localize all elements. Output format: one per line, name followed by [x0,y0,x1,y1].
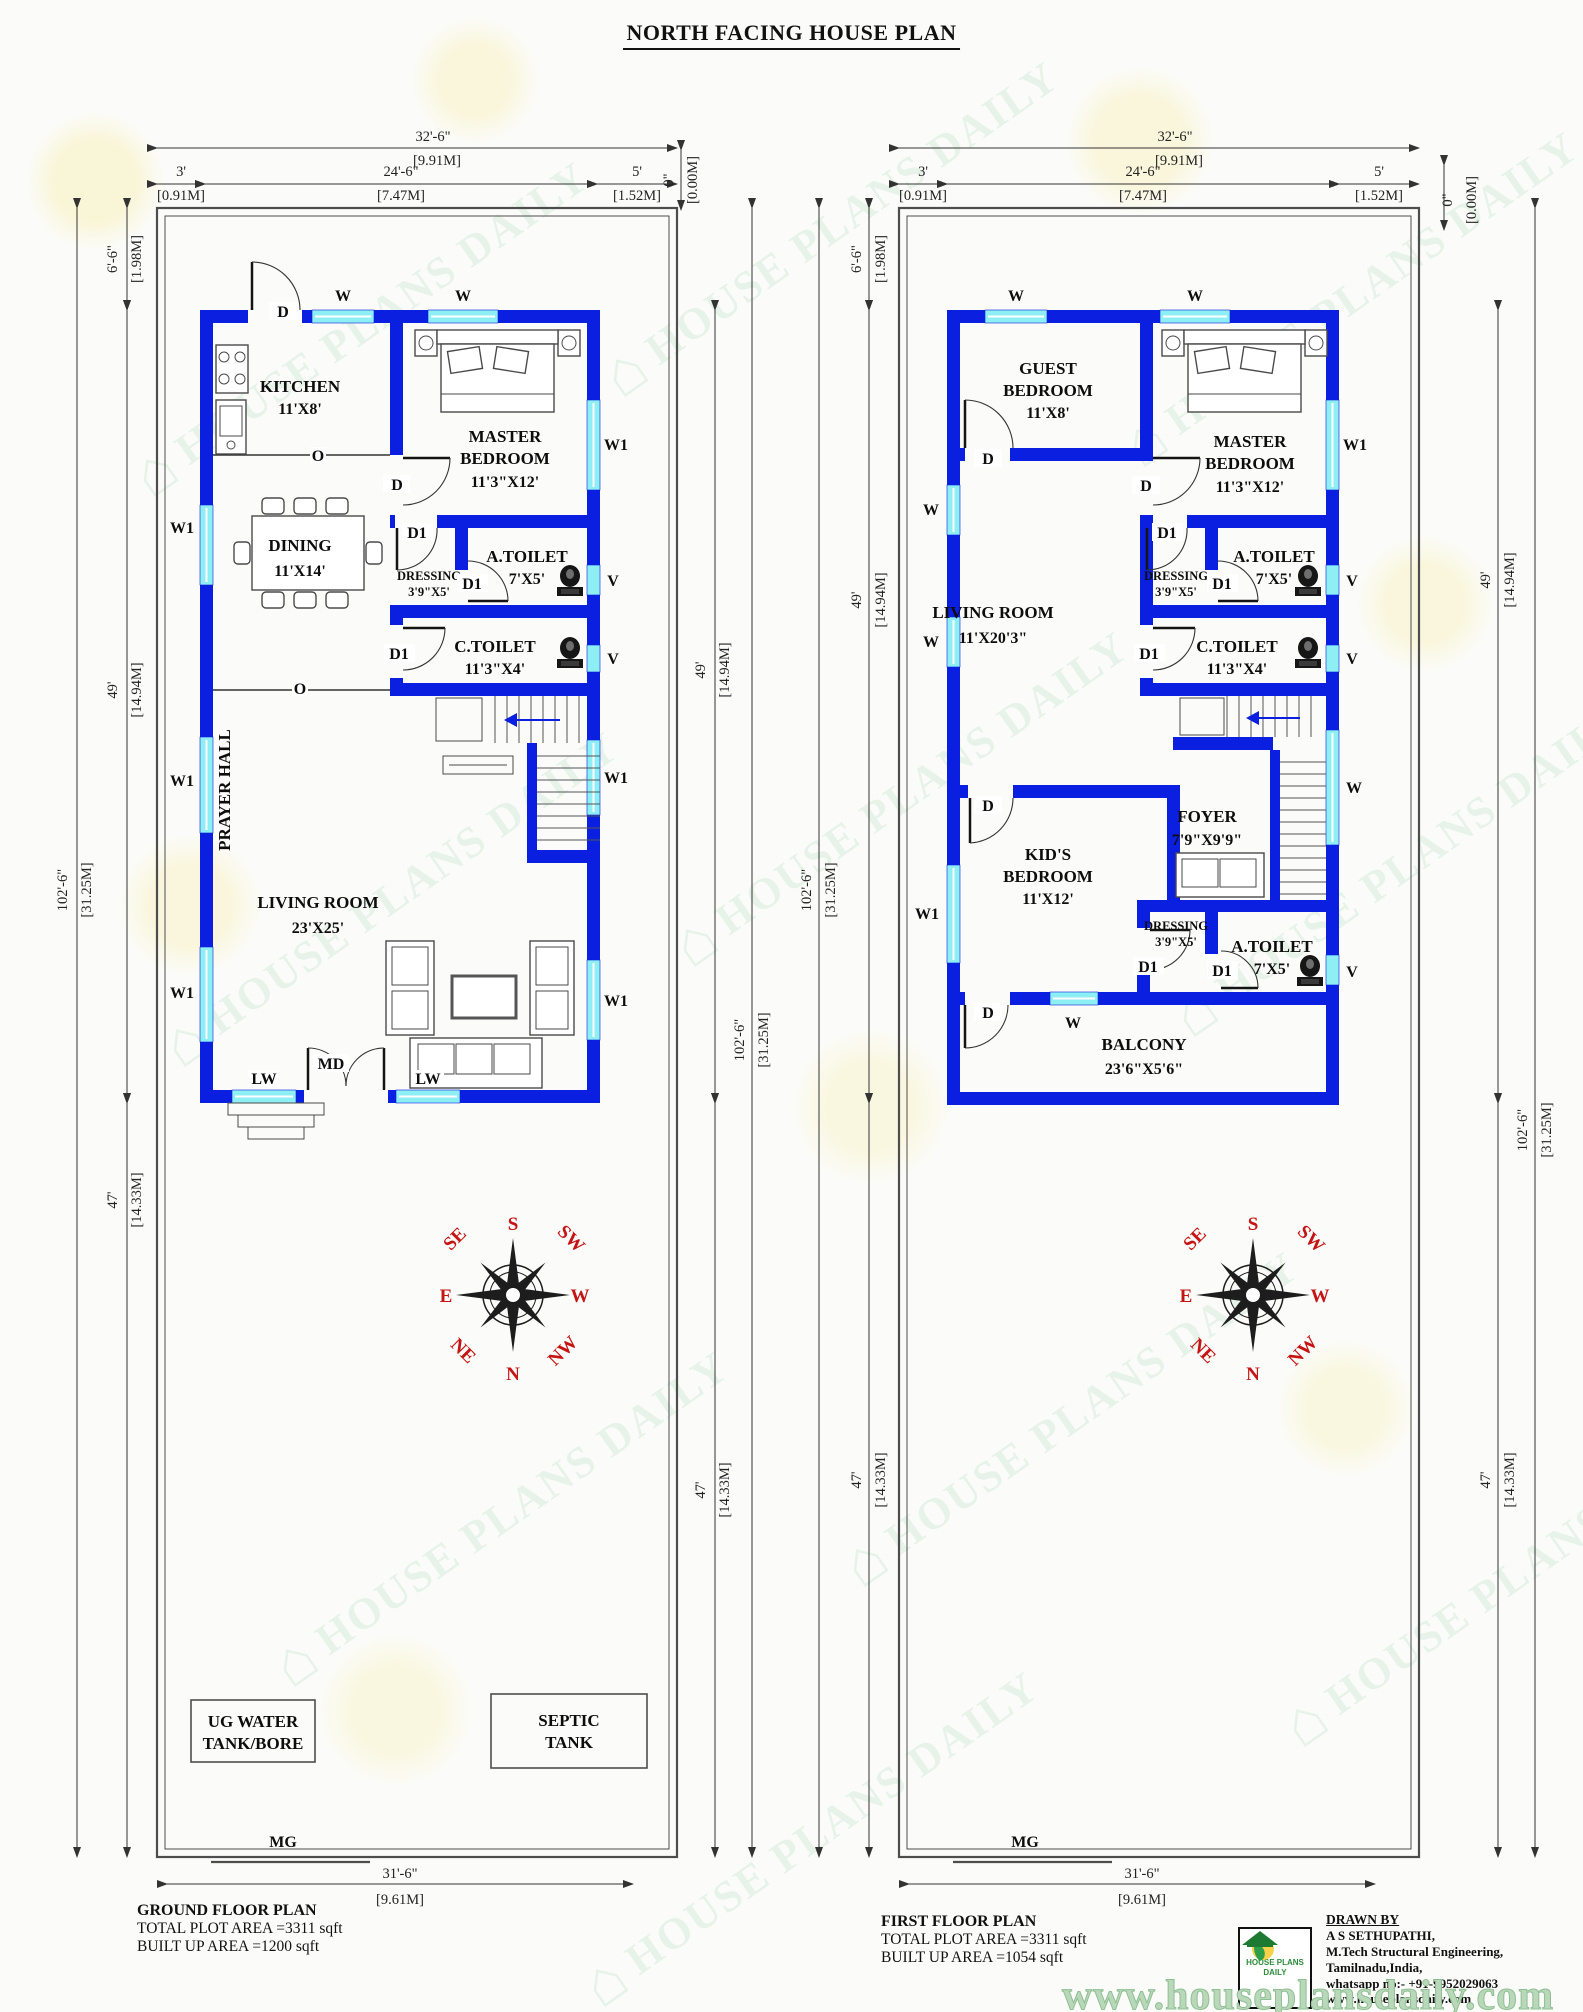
logo-house-icon [1240,1929,1280,1963]
svg-text:47': 47' [849,1471,865,1488]
svg-text:TANK/BORE: TANK/BORE [203,1734,304,1753]
first-built-area: BUILT UP AREA =1054 sqft [881,1949,1087,1967]
svg-text:11'X14': 11'X14' [274,563,326,580]
svg-text:W1: W1 [1343,437,1367,454]
svg-text:E: E [1180,1286,1193,1307]
svg-text:7'9"X9'9": 7'9"X9'9" [1172,832,1242,849]
svg-text:23'X25': 23'X25' [292,920,344,937]
svg-text:[1.98M]: [1.98M] [873,235,889,283]
svg-text:D: D [1140,478,1152,495]
svg-text:11'X12': 11'X12' [1022,891,1074,908]
svg-text:V: V [1346,573,1358,590]
svg-text:W1: W1 [915,906,939,923]
room-label-guest-bedroom: GUEST [1019,359,1077,378]
svg-text:[14.33M]: [14.33M] [1502,1452,1518,1507]
svg-text:W: W [923,634,939,651]
author-qualification: M.Tech Structural Engineering, [1326,1944,1581,1960]
ground-floor-caption: GROUND FLOOR PLAN TOTAL PLOT AREA =3311 … [137,1902,343,1956]
room-label-living: LIVING ROOM [257,893,378,912]
svg-text:24'-6": 24'-6" [383,164,418,180]
plans-drawing: MG 32'-6" [9.91M] 3' [0.91M] 24'-6" [7.4… [0,0,1583,2012]
svg-text:[7.47M]: [7.47M] [1119,188,1167,204]
svg-text:47': 47' [105,1191,121,1208]
door-label: D [277,304,289,321]
ground-stairs [436,696,600,840]
svg-text:BEDROOM: BEDROOM [1205,454,1295,473]
svg-text:W1: W1 [604,770,628,787]
svg-text:SW: SW [1293,1221,1329,1257]
svg-text:W: W [923,502,939,519]
gate-label: MG [269,1834,297,1851]
svg-text:O: O [312,448,324,465]
svg-text:[14.94M]: [14.94M] [717,642,733,697]
svg-text:5': 5' [1374,164,1384,180]
room-label-living: LIVING ROOM [932,603,1053,622]
svg-text:49': 49' [1478,571,1494,588]
svg-text:NE: NE [1186,1334,1220,1368]
main-door-label: MD [318,1056,345,1073]
svg-text:11'3"X12': 11'3"X12' [471,474,539,491]
svg-text:N: N [1246,1364,1260,1385]
svg-text:49': 49' [105,681,121,698]
svg-text:D1: D1 [1139,646,1159,663]
first-floor-title: FIRST FLOOR PLAN [881,1913,1087,1931]
svg-text:47': 47' [693,1481,709,1498]
compass-label-sw: SW [553,1221,589,1257]
svg-text:BEDROOM: BEDROOM [1003,381,1093,400]
room-label-dressing2: DRESSING [1144,919,1208,933]
svg-text:102'-6": 102'-6" [55,869,71,911]
svg-text:W1: W1 [170,520,194,537]
svg-text:5': 5' [632,164,642,180]
gate-label: MG [1011,1834,1039,1851]
svg-text:11'3"X4': 11'3"X4' [465,661,525,678]
svg-text:102'-6": 102'-6" [732,1019,748,1061]
svg-text:[0.91M]: [0.91M] [157,188,205,204]
compass-label-s: S [508,1214,519,1235]
svg-text:102'-6": 102'-6" [1515,1109,1531,1151]
svg-text:D1: D1 [462,576,482,593]
compass-label-se: SE [439,1223,470,1254]
svg-text:[9.61M]: [9.61M] [1118,1892,1166,1908]
room-label-foyer: FOYER [1177,807,1237,826]
svg-text:W1: W1 [604,437,628,454]
room-label-kids-bedroom: KID'S [1025,845,1071,864]
first-walls [947,310,1339,1105]
svg-text:UG WATER: UG WATER [208,1712,299,1731]
dim-label: [9.91M] [413,153,461,169]
svg-text:LW: LW [251,1071,276,1088]
svg-text:D1: D1 [1212,576,1232,593]
first-plot-area: TOTAL PLOT AREA =3311 sqft [881,1931,1087,1949]
svg-text:[31.25M]: [31.25M] [79,862,95,917]
svg-text:11'X8': 11'X8' [1026,405,1070,422]
stove-icon [216,345,248,393]
svg-text:W: W [1187,288,1203,305]
first-floor-plan: MG 32'-6" [9.91M] 3' [0.91M] 24'-6" [7.4… [799,129,1555,1908]
svg-text:V: V [607,573,619,590]
svg-text:6'-6": 6'-6" [849,245,865,273]
room-label-a-toilet2: A.TOILET [1231,937,1313,956]
svg-text:11'3"X12': 11'3"X12' [1216,479,1284,496]
svg-text:3'9"X5': 3'9"X5' [1155,585,1197,599]
coffee-table-icon [452,976,516,1018]
sink-icon [216,400,246,454]
svg-text:[1.98M]: [1.98M] [129,235,145,283]
svg-text:24'-6": 24'-6" [1125,164,1160,180]
svg-text:NW: NW [1284,1332,1322,1370]
svg-text:[0.91M]: [0.91M] [899,188,947,204]
svg-text:[14.33M]: [14.33M] [129,1172,145,1227]
svg-text:D1: D1 [1157,525,1177,542]
room-label-dining: DINING [268,536,331,555]
room-label-a-toilet: A.TOILET [486,547,568,566]
svg-text:[0.00M]: [0.00M] [1464,176,1480,224]
svg-text:31'-6": 31'-6" [1124,1866,1159,1882]
svg-text:[14.94M]: [14.94M] [129,662,145,717]
svg-text:49': 49' [693,661,709,678]
website-watermark: www.houseplansdaily.com [1062,1972,1554,2012]
svg-text:S: S [1248,1214,1259,1235]
drawn-by-heading: DRAWN BY [1326,1912,1581,1928]
svg-text:32'-6": 32'-6" [1157,129,1192,145]
svg-text:11'X20'3": 11'X20'3" [959,630,1027,647]
svg-text:[1.52M]: [1.52M] [613,188,661,204]
svg-text:[31.25M]: [31.25M] [1539,1102,1555,1157]
svg-text:W: W [1065,1015,1081,1032]
svg-text:D1: D1 [1138,959,1158,976]
svg-text:3': 3' [176,164,186,180]
svg-text:[14.94M]: [14.94M] [1502,552,1518,607]
ground-built-area: BUILT UP AREA =1200 sqft [137,1938,343,1956]
window-label: W [455,288,471,305]
svg-text:6'-6": 6'-6" [105,245,121,273]
room-label-dressing: DRESSING [1144,569,1208,583]
svg-text:W1: W1 [170,773,194,790]
page-title: NORTH FACING HOUSE PLAN [623,20,961,50]
svg-text:D: D [982,1005,994,1022]
svg-text:11'3"X4': 11'3"X4' [1207,661,1267,678]
compass-label-w: W [571,1286,590,1307]
svg-text:D: D [391,477,403,494]
svg-text:[1.52M]: [1.52M] [1355,188,1403,204]
svg-text:W: W [1311,1286,1330,1307]
septic-tank-box [491,1694,647,1768]
svg-text:V: V [607,651,619,668]
svg-text:D1: D1 [1212,963,1232,980]
svg-text:TANK: TANK [545,1733,594,1752]
compass-label-e: E [440,1286,453,1307]
compass-label-ne: NE [446,1334,480,1368]
svg-text:47': 47' [1478,1471,1494,1488]
svg-text:D: D [982,798,994,815]
svg-text:[0.00M]: [0.00M] [685,156,701,204]
stair-direction-arrow [504,713,517,727]
window-label: W [335,288,351,305]
first-floor-caption: FIRST FLOOR PLAN TOTAL PLOT AREA =3311 s… [881,1913,1087,1967]
foyer-sofa-icon [1176,853,1264,897]
svg-text:[31.25M]: [31.25M] [823,862,839,917]
svg-text:7'X5': 7'X5' [509,571,545,588]
svg-text:W: W [1346,780,1362,797]
room-label-master-bedroom: MASTER [1214,432,1287,451]
svg-text:SEPTIC: SEPTIC [538,1711,599,1730]
svg-text:3': 3' [918,164,928,180]
svg-text:[7.47M]: [7.47M] [377,188,425,204]
svg-text:[14.33M]: [14.33M] [717,1462,733,1517]
compass-label-nw: NW [544,1332,582,1370]
sofa-set-icon [386,941,574,1088]
svg-text:[14.94M]: [14.94M] [873,572,889,627]
svg-text:BEDROOM: BEDROOM [460,449,550,468]
svg-text:W: W [1008,288,1024,305]
ground-floor-plan: MG 32'-6" [9.91M] 3' [0.91M] 24'-6" [7.4… [55,129,772,1908]
svg-text:11'X8': 11'X8' [278,401,322,418]
author-name: A S SETHUPATHI, [1326,1928,1581,1944]
dim-label: 32'-6" [415,129,450,145]
room-label-dressing: DRESSING [397,569,461,583]
svg-text:LW: LW [415,1071,440,1088]
svg-text:V: V [1346,964,1358,981]
svg-text:3'9"X5': 3'9"X5' [1155,935,1197,949]
svg-text:[9.61M]: [9.61M] [376,1892,424,1908]
room-label-master-bedroom: MASTER [469,427,542,446]
svg-text:0": 0" [1440,193,1456,206]
svg-text:7'X5': 7'X5' [1256,571,1292,588]
svg-text:3'9"X5': 3'9"X5' [408,585,450,599]
svg-text:D1: D1 [407,525,427,542]
ground-plot-area: TOTAL PLOT AREA =3311 sqft [137,1920,343,1938]
svg-text:SE: SE [1179,1223,1210,1254]
svg-text:D1: D1 [389,646,409,663]
svg-text:49': 49' [849,591,865,608]
room-label-c-toilet: C.TOILET [454,637,536,656]
stair-direction-arrow [1246,711,1259,725]
svg-text:[31.25M]: [31.25M] [756,1012,772,1067]
svg-text:23'6"X5'6": 23'6"X5'6" [1105,1061,1183,1078]
room-label-prayer-hall: PRAYER HALL [215,729,234,851]
floor-plan-sheet: ⌂HOUSE PLANS DAILY ⌂HOUSE PLANS DAILY ⌂H… [0,0,1583,2012]
svg-text:[14.33M]: [14.33M] [873,1452,889,1507]
svg-text:W1: W1 [170,985,194,1002]
ground-floor-title: GROUND FLOOR PLAN [137,1902,343,1920]
svg-text:102'-6": 102'-6" [799,869,815,911]
svg-text:D: D [982,451,994,468]
compass-label-n: N [506,1364,520,1385]
svg-text:V: V [1346,651,1358,668]
room-label-a-toilet: A.TOILET [1233,547,1315,566]
svg-text:31'-6": 31'-6" [382,1866,417,1882]
svg-text:W1: W1 [604,993,628,1010]
svg-text:0": 0" [661,173,677,186]
room-label-c-toilet: C.TOILET [1196,637,1278,656]
svg-text:7'X5': 7'X5' [1254,961,1290,978]
svg-text:[9.91M]: [9.91M] [1155,153,1203,169]
svg-text:BEDROOM: BEDROOM [1003,867,1093,886]
svg-text:O: O [294,681,306,698]
room-label-kitchen: KITCHEN [260,377,341,396]
room-label-balcony: BALCONY [1101,1035,1186,1054]
